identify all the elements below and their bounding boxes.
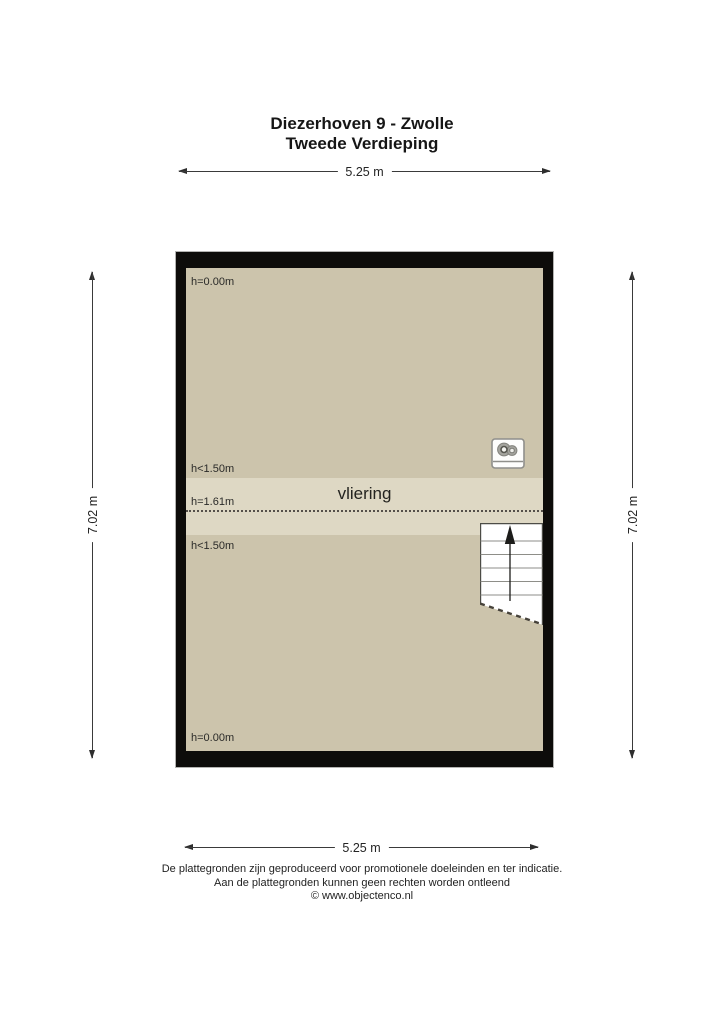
height-label-upper: h<1.50m (191, 463, 234, 475)
disclaimer-line-2: Aan de plattegronden kunnen geen rechten… (0, 877, 724, 891)
stairs-up-icon (480, 523, 543, 626)
title-floor: Tweede Verdieping (0, 134, 724, 154)
title-address: Diezerhoven 9 - Zwolle (0, 114, 724, 134)
arrow-right-icon (530, 844, 539, 850)
ridge-dotted-line (186, 510, 543, 512)
attic-floor-area: h=0.00m h<1.50m h=1.61m h<1.50m h=0.00m … (186, 268, 543, 751)
arrow-right-icon (542, 168, 551, 174)
height-label-bottom: h=0.00m (191, 732, 234, 744)
ventilation-unit-icon (491, 438, 525, 469)
page-title: Diezerhoven 9 - Zwolle Tweede Verdieping (0, 114, 724, 154)
dimension-width-top: 5.25 m (178, 165, 551, 178)
disclaimer: De plattegronden zijn geproduceerd voor … (0, 863, 724, 904)
height-label-top: h=0.00m (191, 276, 234, 288)
dimension-width-bottom: 5.25 m (184, 841, 539, 854)
copyright-line: © www.objectenco.nl (0, 890, 724, 904)
dimension-height-left-label: 7.02 m (86, 488, 100, 542)
disclaimer-line-1: De plattegronden zijn geproduceerd voor … (0, 863, 724, 877)
dimension-height-left: 7.02 m (86, 271, 99, 759)
dimension-width-bottom-label: 5.25 m (334, 841, 388, 855)
floorplan: h=0.00m h<1.50m h=1.61m h<1.50m h=0.00m … (176, 252, 553, 767)
floorplan-page: Diezerhoven 9 - Zwolle Tweede Verdieping… (0, 0, 724, 1024)
arrow-down-icon (89, 750, 95, 759)
height-label-lower: h<1.50m (191, 540, 234, 552)
dimension-width-top-label: 5.25 m (337, 165, 391, 179)
room-label-vliering: vliering (186, 484, 543, 504)
dimension-height-right: 7.02 m (626, 271, 639, 759)
arrow-down-icon (629, 750, 635, 759)
dimension-height-right-label: 7.02 m (626, 488, 640, 542)
